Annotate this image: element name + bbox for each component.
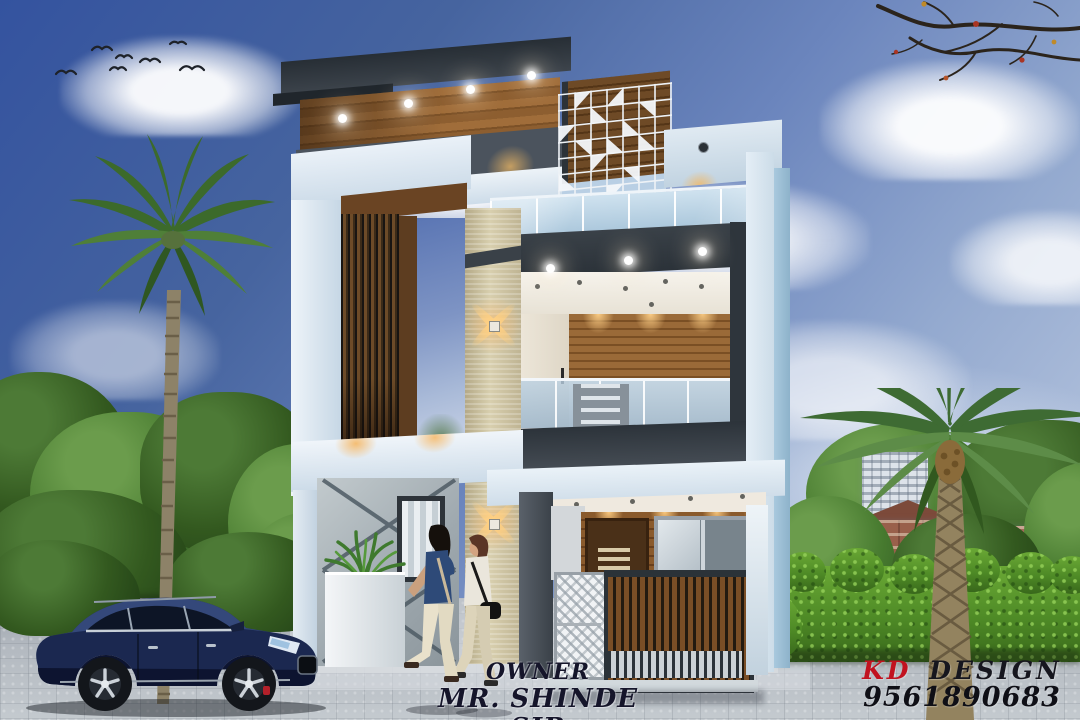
ceiling-light-dot	[649, 302, 654, 307]
wooden-louver-panel	[341, 214, 399, 448]
designer-logo: KD DESIGN	[852, 658, 1072, 684]
ceiling-light-dot	[699, 284, 704, 289]
scene-root: OWNER MR. SHINDE SIR KD DESIGN 956189068…	[0, 0, 1080, 720]
portal-wood-jamb	[399, 216, 417, 446]
cloud	[950, 210, 1080, 305]
gate-divider	[557, 623, 601, 626]
owner-label: OWNER	[408, 660, 668, 685]
soffit-spotlight	[404, 99, 413, 108]
ceiling-light-dot	[663, 279, 668, 284]
window-mullion	[701, 520, 705, 574]
balcony-wood-accent-wall	[569, 314, 732, 378]
balcony-spotlight	[624, 256, 633, 265]
suv-car	[20, 570, 332, 720]
bare-branches	[826, 0, 1080, 118]
ceiling-light-dot	[535, 284, 540, 289]
porch-side-wall	[551, 506, 585, 580]
butterfly-wall-light	[476, 308, 510, 342]
railing-gray-panel	[573, 384, 629, 430]
portal-sky-opening	[417, 218, 465, 440]
birds-flock	[52, 36, 212, 92]
owner-name: MR. SHINDE SIR	[408, 685, 668, 720]
balcony-interior	[511, 272, 732, 434]
window-pane	[658, 520, 700, 574]
owner-caption: OWNER MR. SHINDE SIR	[408, 660, 668, 720]
balcony-spotlight	[546, 264, 555, 273]
gate-end-pillar	[746, 505, 768, 675]
balcony-spotlight	[698, 247, 707, 256]
logo-word: DESIGN	[929, 656, 1062, 685]
white-planter-box	[325, 572, 405, 667]
recessed-light	[698, 142, 709, 153]
logo-initials: KD	[862, 656, 911, 685]
ceiling-light-dot	[630, 499, 635, 504]
ceiling-light-dot	[577, 280, 582, 285]
ceiling-light-dot	[740, 494, 745, 499]
balcony-ceiling	[511, 272, 732, 316]
soffit-spotlight	[527, 71, 536, 80]
gray-pillar	[519, 492, 553, 678]
ceiling-light-dot	[623, 286, 628, 291]
soffit-spotlight	[338, 114, 347, 123]
soffit-spotlight	[466, 85, 475, 94]
designer-phone: 9561890683	[852, 684, 1072, 712]
designer-branding: KD DESIGN 9561890683	[852, 658, 1072, 713]
ceiling-light-dot	[688, 496, 693, 501]
